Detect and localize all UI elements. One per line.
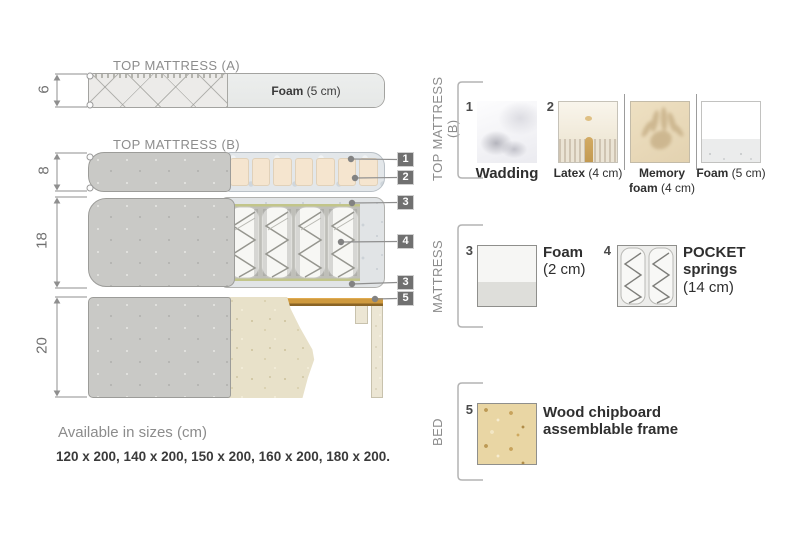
dimension-label-6: 6 [36,77,53,103]
arrowhead [54,101,61,107]
foam-section-label-area: Foam (5 cm) [228,74,384,107]
badge-2: 2 [397,170,414,185]
foam-block [295,158,314,186]
legend-section-top-mattress-b: TOP MATTRESS (B) [430,68,452,190]
dimension-label-20: 20 [34,333,51,359]
spring-window [228,204,360,281]
pocket-springs-graphic [228,204,360,281]
wadding-swatch [477,101,537,163]
legend-divider [696,94,697,170]
layer-mattress [88,197,385,288]
available-sizes-list: 120 x 200, 140 x 200, 150 x 200, 160 x 2… [56,449,390,464]
pocket-springs-pair-graphic [618,246,676,306]
layer-bed [88,297,385,398]
foam-a-label: Foam (5 cm) [271,84,340,98]
legend-label-foam-5cm: Foam (5 cm) [688,166,774,181]
legend-num-3: 3 [460,243,473,258]
legend-label-latex: Latex (4 cm) [543,166,633,181]
layer-top-mattress-b [88,152,385,192]
foam-5cm-swatch [701,101,761,163]
arrowhead [54,198,61,204]
legend-section-mattress: MATTRESS [430,226,452,326]
arrowhead [54,282,61,288]
layer-top-mattress-a: Foam (5 cm) [88,73,385,108]
chipboard-swatch [477,403,537,465]
bed-frame-bracket [355,305,368,324]
foam-block [252,158,271,186]
available-sizes-title: Available in sizes (cm) [58,424,207,441]
foam-block [338,158,357,186]
wadding-wrap [223,152,385,192]
bed-frame-side [371,298,383,398]
dimension-20-lines [55,297,87,397]
badge-4: 4 [397,234,414,249]
legend-num-4: 4 [598,243,611,258]
hand-imprint-graphic [631,102,689,162]
arrowhead [54,391,61,397]
dimension-label-8: 8 [36,158,53,184]
arrowhead [54,185,61,191]
arrowhead [54,75,61,81]
foam-block [230,158,249,186]
bed-skirt-fabric [226,297,316,398]
legend-divider [624,94,625,170]
legend-num-5: 5 [460,402,473,417]
legend-label-wadding: Wadding [462,165,552,182]
pocket-springs-swatch [617,245,677,307]
memory-foam-swatch [630,101,690,163]
dimension-6-lines [55,74,87,107]
top-mattress-a-title: TOP MATTRESS (A) [113,58,240,73]
quilted-wadding-section [89,74,228,107]
legend-num-2: 2 [541,99,554,114]
badge-1: 1 [397,152,414,167]
foam-block [359,158,378,186]
latex-pin [585,137,593,162]
dimension-8-lines [55,153,87,191]
dimension-label-18: 18 [34,228,51,254]
badge-3-top: 3 [397,195,414,210]
foam-block [316,158,335,186]
arrowhead [54,298,61,304]
fabric-cover [88,152,231,192]
legend-label-pocket-springs: POCKET springs(14 cm) [683,244,759,296]
top-mattress-b-title: TOP MATTRESS (B) [113,137,240,152]
badge-5: 5 [397,291,414,306]
foam-2cm-swatch [477,245,537,307]
legend-num-1: 1 [460,99,473,114]
legend-section-bed: BED [430,386,452,478]
arrowhead [54,154,61,160]
foam-blocks [230,158,378,186]
legend-label-chipboard: Wood chipboard assemblable frame [543,404,708,439]
foam-block [273,158,292,186]
dimension-18-lines [55,197,87,288]
mattress-infographic: TOP MATTRESS (A) TOP MATTRESS (B) 6 8 18… [0,0,800,533]
badge-3-bottom: 3 [397,275,414,290]
fabric-cover [88,198,235,287]
fabric-cover [88,297,231,398]
latex-swatch [558,101,618,163]
